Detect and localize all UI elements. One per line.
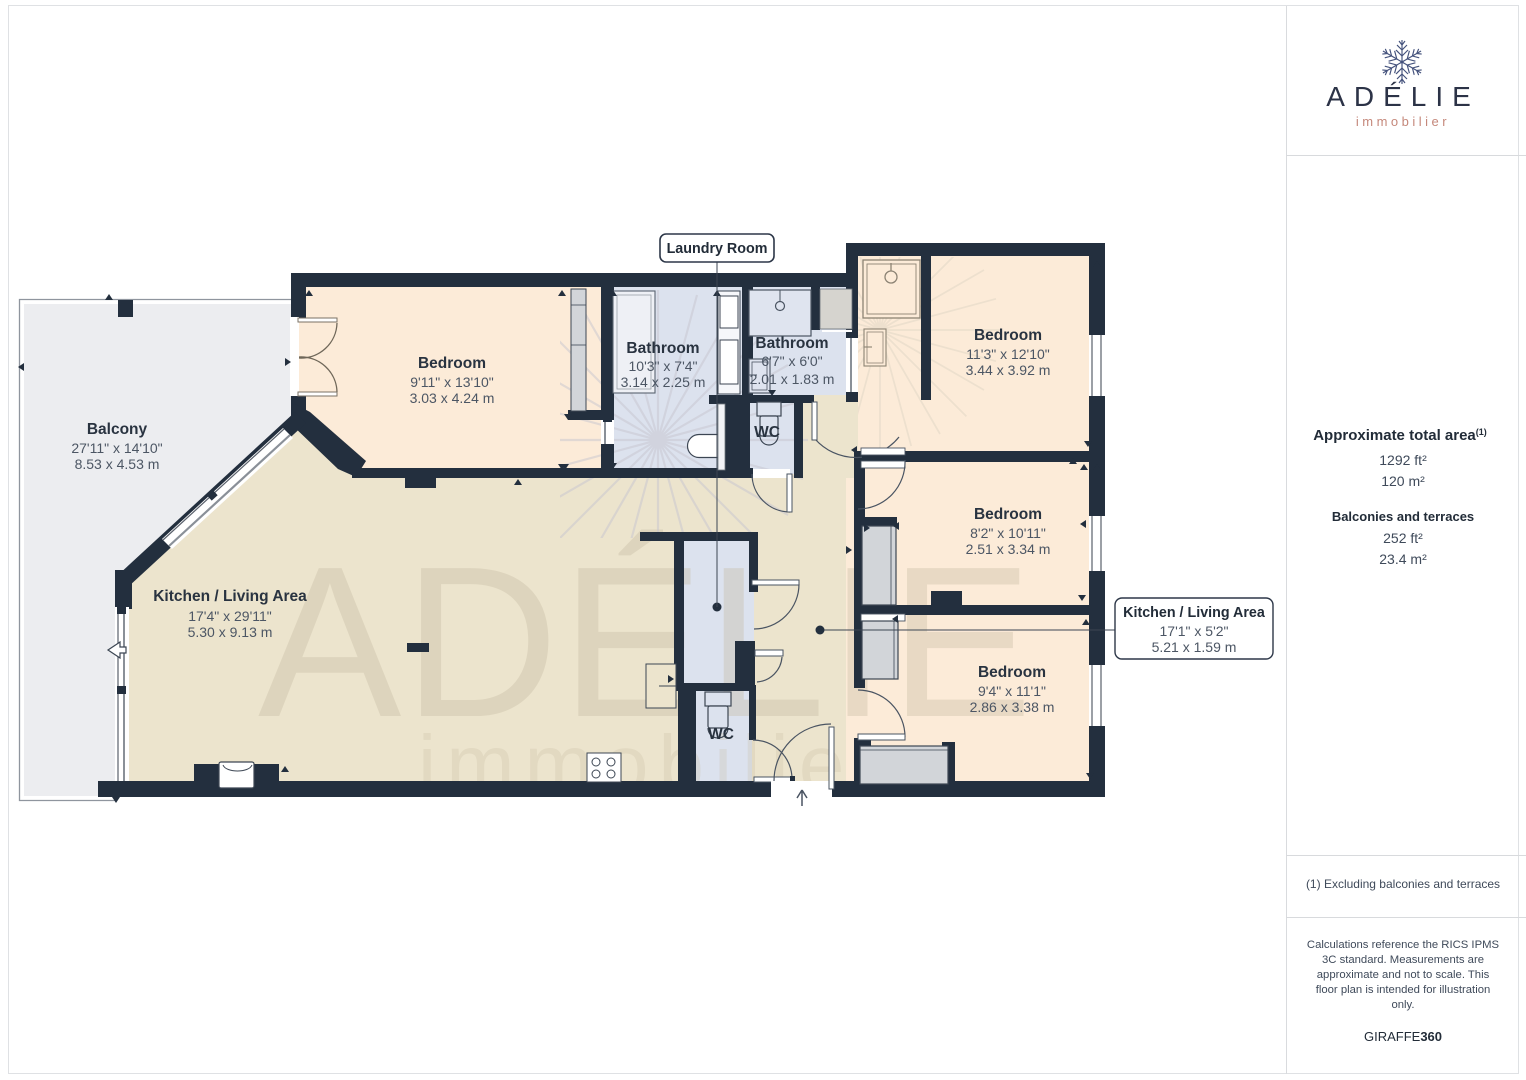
svg-text:2.86 x 3.38 m: 2.86 x 3.38 m [970, 699, 1055, 715]
svg-text:1292 ft²: 1292 ft² [1379, 452, 1427, 468]
svg-text:ADÉLIE: ADÉLIE [1326, 81, 1480, 112]
svg-text:120 m²: 120 m² [1381, 473, 1425, 489]
svg-text:Laundry Room: Laundry Room [667, 241, 768, 257]
svg-text:Bathroom: Bathroom [755, 335, 828, 352]
svg-text:Bedroom: Bedroom [974, 506, 1042, 523]
svg-text:17'4" x 29'11": 17'4" x 29'11" [188, 608, 272, 624]
svg-text:2.01 x 1.83 m: 2.01 x 1.83 m [750, 371, 835, 387]
svg-text:3C standard. Measurements are: 3C standard. Measurements are [1322, 954, 1484, 966]
svg-text:Balcony: Balcony [87, 421, 148, 438]
svg-text:3.44 x 3.92 m: 3.44 x 3.92 m [966, 362, 1051, 378]
svg-text:8'2" x 10'11": 8'2" x 10'11" [970, 525, 1046, 541]
svg-text:Balconies and terraces: Balconies and terraces [1332, 509, 1474, 524]
svg-text:252 ft²: 252 ft² [1383, 530, 1423, 546]
svg-text:9'11" x 13'10": 9'11" x 13'10" [410, 374, 494, 390]
svg-text:GIRAFFE360: GIRAFFE360 [1364, 1029, 1442, 1044]
svg-text:(1) Excluding balconies and te: (1) Excluding balconies and terraces [1306, 877, 1500, 891]
svg-text:WC: WC [754, 424, 780, 441]
svg-text:8.53 x 4.53 m: 8.53 x 4.53 m [75, 456, 160, 472]
svg-text:approximate and not to scale.: approximate and not to scale. This [1317, 969, 1490, 981]
svg-text:6'7" x 6'0": 6'7" x 6'0" [761, 353, 822, 369]
svg-text:9'4" x 11'1": 9'4" x 11'1" [978, 683, 1046, 699]
svg-text:Bathroom: Bathroom [626, 340, 699, 357]
svg-text:11'3" x 12'10": 11'3" x 12'10" [966, 346, 1050, 362]
svg-text:3.14 x 2.25 m: 3.14 x 2.25 m [621, 374, 706, 390]
svg-text:Bedroom: Bedroom [418, 355, 486, 372]
svg-text:Kitchen / Living Area: Kitchen / Living Area [1123, 605, 1266, 621]
svg-text:2.51 x 3.34 m: 2.51 x 3.34 m [966, 541, 1051, 557]
svg-text:17'1" x 5'2": 17'1" x 5'2" [1160, 623, 1229, 639]
svg-text:Bedroom: Bedroom [978, 664, 1046, 681]
svg-text:immobilier: immobilier [1356, 114, 1450, 129]
svg-text:5.30 x 9.13 m: 5.30 x 9.13 m [188, 624, 273, 640]
svg-text:Bedroom: Bedroom [974, 327, 1042, 344]
svg-text:Kitchen / Living Area: Kitchen / Living Area [153, 588, 307, 605]
svg-text:3.03 x 4.24 m: 3.03 x 4.24 m [410, 390, 495, 406]
svg-text:Approximate total area(1): Approximate total area(1) [1313, 427, 1487, 444]
svg-text:only.: only. [1391, 999, 1414, 1011]
svg-text:WC: WC [708, 726, 734, 743]
svg-text:23.4 m²: 23.4 m² [1379, 551, 1427, 567]
svg-text:10'3" x 7'4": 10'3" x 7'4" [629, 358, 698, 374]
svg-text:5.21 x 1.59 m: 5.21 x 1.59 m [1152, 639, 1237, 655]
svg-text:floor plan is intended for ill: floor plan is intended for illustration [1316, 984, 1491, 996]
svg-text:Calculations reference the RIC: Calculations reference the RICS IPMS [1307, 939, 1500, 951]
svg-text:27'11" x 14'10": 27'11" x 14'10" [71, 440, 162, 456]
